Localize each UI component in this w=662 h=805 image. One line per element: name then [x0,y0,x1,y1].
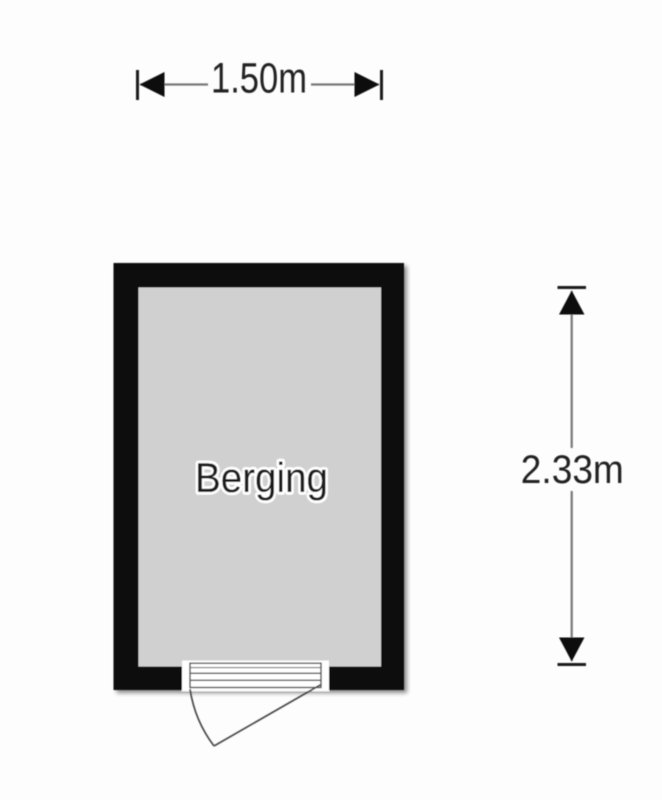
svg-text:2.33m: 2.33m [521,448,624,492]
svg-text:Berging: Berging [195,454,328,501]
svg-text:1.50m: 1.50m [211,55,307,103]
